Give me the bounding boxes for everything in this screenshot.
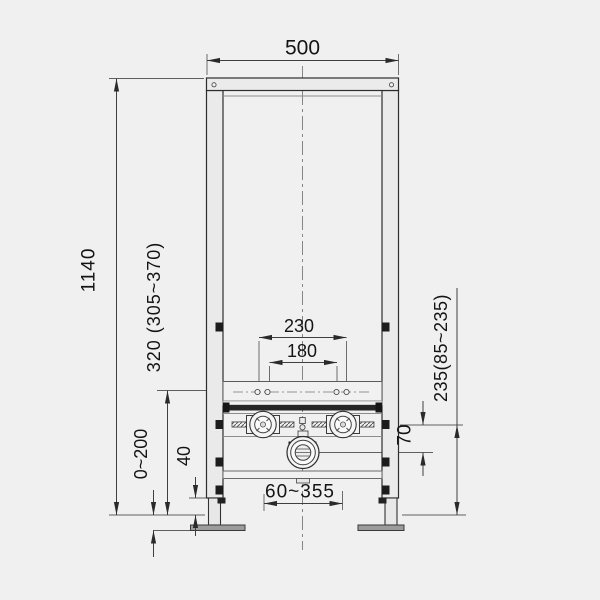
dim-width-label: 500 (285, 38, 320, 59)
dim-height-label: 1140 (80, 248, 99, 293)
top-fixing-hole-right (389, 83, 393, 87)
right-leg (385, 498, 397, 525)
dim-bolt-inner-label: 180 (287, 342, 317, 360)
frame-top-bar (207, 78, 399, 91)
water-connection-left (232, 411, 294, 437)
dim-drain-range-label: 60~355 (265, 483, 335, 502)
bolt-hole (344, 389, 349, 394)
dim-base-height-label: 40 (175, 446, 193, 466)
technical-drawing-page: 500 1140 320 (305~370) 0~200 40 230 180 … (0, 0, 600, 600)
foot-plate-left (191, 525, 246, 531)
foot-plate-right (358, 525, 404, 531)
frame-left-rail (207, 91, 224, 499)
dim-connection-offset-label: 70 (396, 424, 415, 445)
dim-plate-height-label: 320 (305~370) (145, 242, 163, 373)
dim-bolt-outer-label: 230 (284, 317, 314, 335)
mounting-track (223, 405, 382, 411)
technical-drawing-canvas (0, 0, 600, 600)
bolt-hole (265, 389, 270, 394)
top-fixing-hole-left (212, 83, 216, 87)
bolt-hole (334, 389, 339, 394)
dim-leg-adjust-label: 0~200 (132, 429, 150, 480)
bolt-hole (255, 389, 260, 394)
water-connection-right (312, 411, 374, 437)
dim-connection-height-label: 235(85~235) (432, 294, 450, 402)
